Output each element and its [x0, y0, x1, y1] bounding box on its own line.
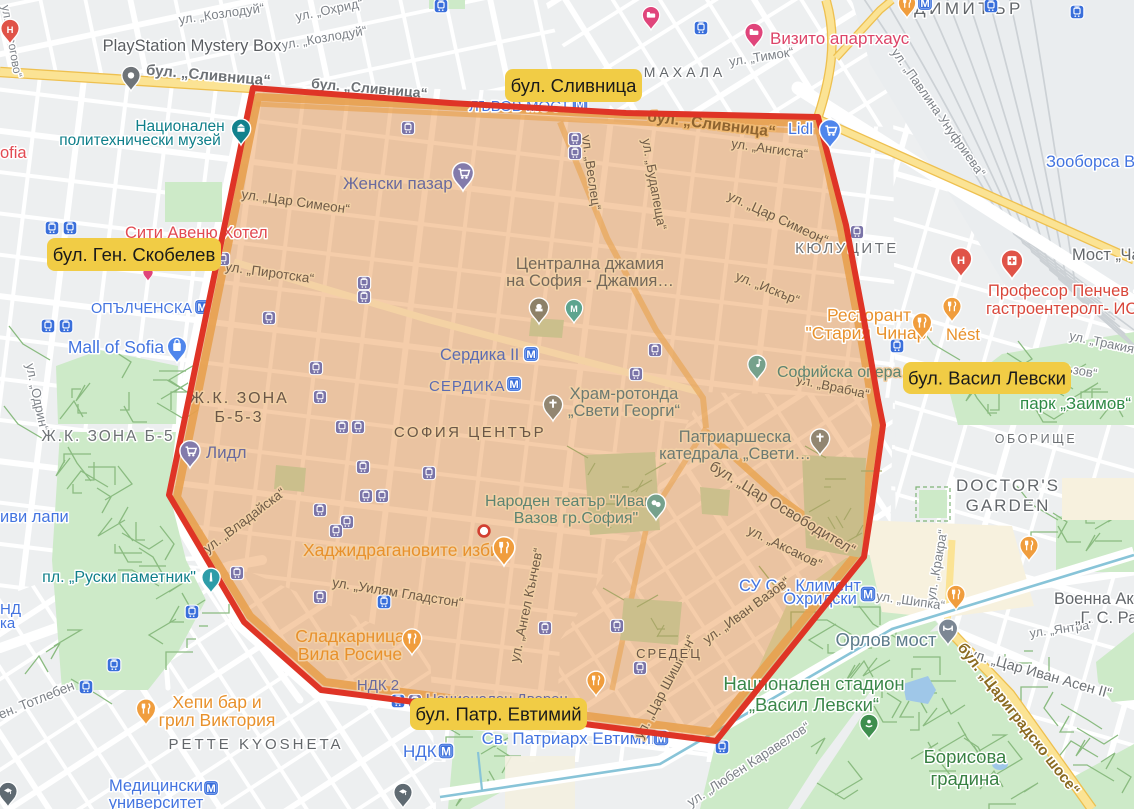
svg-text:грил Виктория: грил Виктория	[159, 710, 276, 730]
svg-text:СРЕДЕЦ: СРЕДЕЦ	[636, 646, 702, 661]
svg-text:Военна Ак: Военна Ак	[1054, 590, 1134, 608]
svg-text:на София - Джамия…: на София - Джамия…	[506, 272, 674, 290]
svg-text:Mall of Sofia: Mall of Sofia	[68, 337, 165, 357]
svg-text:СЕРДИКА: СЕРДИКА	[429, 378, 506, 395]
svg-text:СОФИЯ ЦЕНТЪР: СОФИЯ ЦЕНТЪР	[394, 424, 546, 441]
svg-text:ofia: ofia	[0, 144, 27, 162]
svg-text:Храм-ротонда: Храм-ротонда	[570, 385, 679, 403]
svg-text:Софийска опера и: Софийска опера и	[777, 364, 915, 381]
svg-text:Охридски: Охридски	[783, 590, 857, 608]
svg-text:Вила Росиче: Вила Росиче	[298, 644, 402, 664]
svg-text:пл. „Руски паметник": пл. „Руски паметник"	[42, 569, 196, 586]
svg-text:Сладкарница: Сладкарница	[295, 626, 405, 646]
svg-text:МАХАЛА: МАХАЛА	[644, 64, 727, 80]
svg-text:НДК: НДК	[403, 742, 437, 761]
svg-text:Вазов гр.София": Вазов гр.София"	[514, 510, 638, 527]
svg-text:Орлов мост: Орлов мост	[835, 629, 937, 650]
svg-text:гастроентеролг- ИС: гастроентеролг- ИС	[986, 300, 1134, 318]
svg-text:градина: градина	[931, 768, 1001, 789]
svg-text:университет: университет	[109, 794, 204, 809]
svg-text:Мост „Ча: Мост „Ча	[1072, 246, 1134, 264]
svg-text:Хаджидрагановите изби: Хаджидрагановите изби	[303, 540, 500, 560]
svg-text:Сердика II: Сердика II	[440, 346, 519, 364]
svg-text:Lidl: Lidl	[788, 121, 813, 138]
svg-text:DOCTOR'S: DOCTOR'S	[956, 476, 1060, 495]
svg-text:Визито апартхаус: Визито апартхаус	[770, 29, 910, 48]
svg-text:„Васил Левски“: „Васил Левски“	[749, 694, 879, 715]
svg-text:H: H	[7, 25, 14, 36]
svg-text:бул. Патр. Евтимий: бул. Патр. Евтимий	[415, 703, 581, 724]
svg-text:Женски пазар: Женски пазар	[343, 174, 453, 193]
svg-text:ОПЪЛЧЕНСКА: ОПЪЛЧЕНСКА	[91, 301, 192, 317]
svg-text:PlayStation Mystery Box: PlayStation Mystery Box	[103, 37, 283, 55]
svg-text:ка: ка	[0, 615, 16, 632]
svg-text:PETTE KYOSHETA: PETTE KYOSHETA	[168, 736, 343, 753]
svg-text:Медицински: Медицински	[109, 777, 203, 795]
svg-text:бул. Сливница: бул. Сливница	[511, 75, 638, 96]
svg-text:Патриаршеска: Патриаршеска	[679, 428, 792, 446]
svg-text:GARDEN: GARDEN	[966, 496, 1051, 515]
svg-text:Национален стадион: Национален стадион	[723, 673, 904, 694]
svg-text:иви лапи: иви лапи	[0, 508, 69, 526]
svg-text:„Свети Георги“: „Свети Георги“	[568, 402, 680, 420]
svg-text:парк „Заимов“: парк „Заимов“	[1020, 394, 1131, 413]
svg-text:„Г. С. Ра: „Г. С. Ра	[1075, 609, 1134, 627]
svg-text:катедрала „Свети…: катедрала „Свети…	[659, 445, 811, 463]
svg-text:Лидл: Лидл	[206, 443, 247, 462]
svg-text:Nést: Nést	[946, 326, 980, 344]
svg-text:Централна джамия: Централна джамия	[516, 255, 664, 273]
svg-text:Б-5-3: Б-5-3	[215, 409, 264, 426]
svg-text:Ж.К. ЗОНА: Ж.К. ЗОНА	[189, 390, 289, 407]
svg-text:политехнически музей: политехнически музей	[59, 132, 221, 149]
svg-text:ОБОРИЩЕ: ОБОРИЩЕ	[995, 432, 1077, 446]
svg-text:Народен театър "Иван: Народен театър "Иван	[485, 493, 653, 510]
svg-text:Ж.К. ЗОНА Б-5: Ж.К. ЗОНА Б-5	[41, 428, 174, 445]
svg-text:H: H	[957, 255, 965, 267]
svg-text:Хепи бар и: Хепи бар и	[172, 692, 261, 712]
svg-text:Ресторант: Ресторант	[827, 305, 911, 325]
svg-text:Борисова: Борисова	[924, 746, 1007, 767]
svg-text:бул. Ген. Скобелев: бул. Ген. Скобелев	[53, 244, 216, 265]
svg-text:бул. Васил Левски: бул. Васил Левски	[908, 367, 1066, 388]
svg-text:М: М	[570, 304, 578, 314]
svg-text:Зооборса Ве: Зооборса Ве	[1046, 153, 1134, 171]
svg-text:НДК 2: НДК 2	[357, 677, 399, 694]
svg-text:Професор Пенчев -: Професор Пенчев -	[988, 282, 1134, 300]
